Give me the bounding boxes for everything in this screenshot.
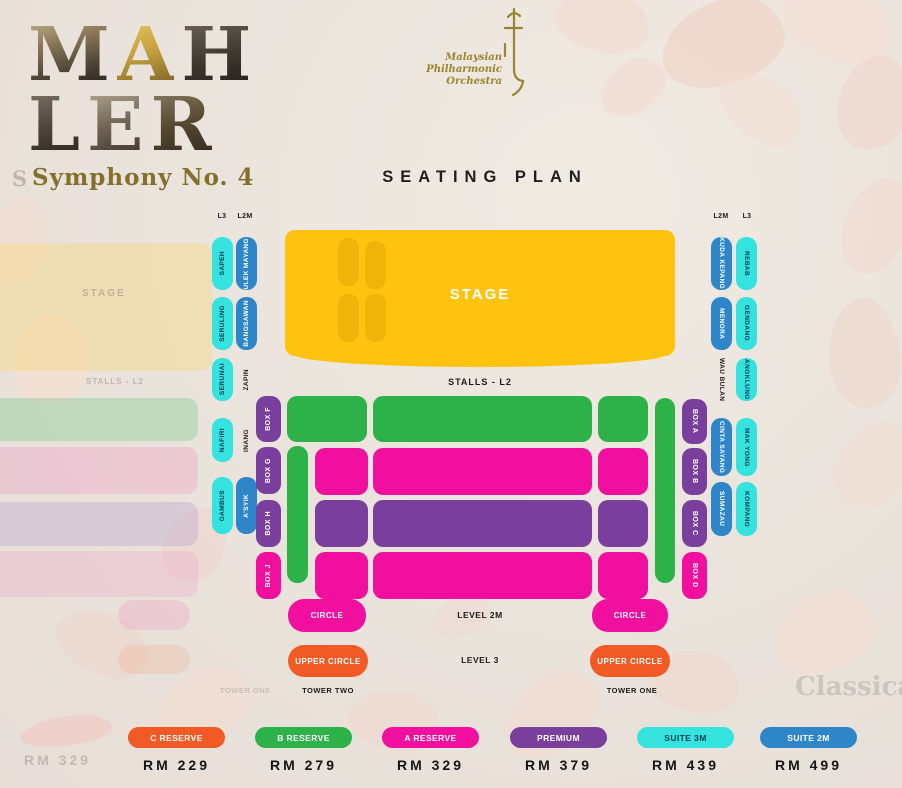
label-left-zapin: ZAPIN bbox=[236, 358, 257, 401]
ghost-row-pink2 bbox=[0, 551, 198, 597]
left-header-l3: L3 bbox=[211, 213, 233, 220]
petal bbox=[0, 305, 102, 413]
petal bbox=[834, 169, 902, 281]
label-right-wau-bulan: WAU BULAN bbox=[711, 358, 732, 401]
petal bbox=[19, 711, 114, 750]
stalls-right-block-row2[interactable] bbox=[598, 448, 648, 495]
ghost-stage-area bbox=[0, 243, 212, 371]
symphony-subtitle: Symphony No. 4 bbox=[32, 164, 255, 191]
ghost-tower-label: TOWER ONE bbox=[220, 686, 271, 695]
suite-left-nafiri[interactable]: NAFIRI bbox=[212, 418, 233, 462]
stalls-left-block-row4[interactable] bbox=[315, 552, 368, 599]
stalls-left-block-row2[interactable] bbox=[315, 448, 368, 495]
petal bbox=[764, 580, 885, 683]
petal bbox=[548, 0, 658, 65]
circle-right-pill[interactable]: CIRCLE bbox=[592, 599, 668, 632]
stalls-right-block-row1[interactable] bbox=[598, 396, 648, 442]
price-c-reserve: RM 229 bbox=[111, 757, 242, 773]
stalls-label: STALLS - L2 bbox=[285, 377, 675, 387]
petal bbox=[707, 54, 815, 161]
stalls-left-aisle-bar[interactable] bbox=[287, 446, 308, 583]
mahler-letters-row1: M A H bbox=[28, 18, 251, 92]
legend-a-reserve: A RESERVE bbox=[382, 727, 479, 748]
tower-two-label: TOWER TWO bbox=[288, 686, 368, 695]
suite-right-menora[interactable]: MENORA bbox=[711, 297, 732, 350]
stalls-left-block-row3[interactable] bbox=[315, 500, 368, 547]
ghost-row-purple bbox=[0, 502, 198, 546]
box-h[interactable]: BOX H bbox=[256, 500, 281, 547]
suite-right-angklung[interactable]: ANGKLUNG bbox=[736, 358, 757, 401]
suite-left-bangsawan[interactable]: BANGSAWAN bbox=[236, 297, 257, 350]
suite-right-mak-yong[interactable]: MAK YONG bbox=[736, 418, 757, 476]
right-header-l3: L3 bbox=[736, 213, 758, 220]
suite-left-gambus[interactable]: GAMBUS bbox=[212, 477, 233, 534]
petal bbox=[590, 48, 676, 126]
logo-line-3: Orchestra bbox=[426, 76, 502, 88]
price-a-reserve: RM 329 bbox=[365, 757, 496, 773]
letter-m: M bbox=[28, 18, 110, 92]
ghost-upper-pill bbox=[118, 645, 190, 674]
letter-e: E bbox=[87, 88, 143, 162]
legend-c-reserve: C RESERVE bbox=[128, 727, 225, 748]
legend-b-reserve: B RESERVE bbox=[255, 727, 352, 748]
ghost-price: RM 329 bbox=[24, 752, 91, 768]
box-d[interactable]: BOX D bbox=[682, 552, 707, 599]
mpo-logo-text: Malaysian Philharmonic Orchestra bbox=[426, 52, 502, 88]
upper-circle-right-pill[interactable]: UPPER CIRCLE bbox=[590, 645, 670, 677]
suite-left-seruling[interactable]: SERULING bbox=[212, 297, 233, 350]
petal bbox=[46, 592, 159, 693]
legend-premium: PREMIUM bbox=[510, 727, 607, 748]
right-header-l2m: L2M bbox=[710, 213, 732, 220]
ghost-circle-pill bbox=[118, 600, 190, 630]
legend-suite-3m: SUITE 3M bbox=[637, 727, 734, 748]
suite-right-rebab[interactable]: REBAB bbox=[736, 237, 757, 290]
suite-right-cinta-sayang[interactable]: CINTA SAYANG bbox=[711, 418, 732, 476]
legend-suite-2m: SUITE 2M bbox=[760, 727, 857, 748]
suite-left-ulek-mayang[interactable]: ULEK MAYANG bbox=[236, 237, 257, 290]
ghost-stalls-label: STALLS - L2 bbox=[86, 377, 144, 386]
suite-left-asyik[interactable]: A'SYIK bbox=[236, 477, 257, 534]
petal bbox=[819, 293, 902, 414]
ghost-stage-label: STAGE bbox=[82, 288, 126, 299]
stalls-center-block-row1[interactable] bbox=[373, 396, 592, 442]
petal bbox=[652, 0, 794, 99]
price-premium: RM 379 bbox=[493, 757, 624, 773]
label-left-inang: INANG bbox=[236, 418, 257, 462]
seating-plan-poster: STAGE STALLS - L2 TOWER ONE S RM 329 Cla… bbox=[0, 0, 902, 788]
letter-a: A bbox=[117, 18, 174, 92]
stage-label: STAGE bbox=[285, 286, 675, 303]
box-j[interactable]: BOX J bbox=[256, 552, 281, 599]
letter-r: R bbox=[150, 88, 212, 162]
stalls-right-aisle-bar[interactable] bbox=[655, 398, 675, 583]
stage: STAGE bbox=[285, 230, 675, 356]
petal bbox=[769, 0, 902, 83]
box-c[interactable]: BOX C bbox=[682, 500, 707, 547]
petal bbox=[835, 53, 902, 153]
petal bbox=[822, 408, 902, 521]
suite-right-kuda-kepang[interactable]: KUDA KEPANG bbox=[711, 237, 732, 290]
stalls-right-block-row3[interactable] bbox=[598, 500, 648, 547]
page-title: SEATING PLAN bbox=[290, 168, 680, 187]
mpo-logo-icon bbox=[498, 6, 532, 98]
price-b-reserve: RM 279 bbox=[238, 757, 369, 773]
stage-choir-pill bbox=[365, 241, 386, 289]
stage-choir-pill bbox=[338, 238, 359, 286]
box-f[interactable]: BOX F bbox=[256, 396, 281, 442]
letter-h: H bbox=[181, 18, 251, 92]
letter-l: L bbox=[28, 88, 80, 162]
suite-right-sumazau[interactable]: SUMAZAU bbox=[711, 482, 732, 536]
logo-line-2: Philharmonic bbox=[426, 64, 502, 76]
ghost-row-pink1 bbox=[0, 447, 198, 494]
petal bbox=[0, 190, 56, 291]
suite-right-gendang[interactable]: GENDANG bbox=[736, 297, 757, 350]
price-suite-2m: RM 499 bbox=[743, 757, 874, 773]
ghost-classics: Classical bbox=[795, 672, 902, 702]
box-a[interactable]: BOX A bbox=[682, 399, 707, 444]
ghost-row-green bbox=[0, 398, 198, 441]
stalls-right-block-row4[interactable] bbox=[598, 552, 648, 599]
mahler-letters-row2: L E R bbox=[28, 88, 212, 162]
box-g[interactable]: BOX G bbox=[256, 447, 281, 494]
suite-right-kompang[interactable]: KOMPANG bbox=[736, 482, 757, 536]
suite-left-sapeh[interactable]: SAPEH bbox=[212, 237, 233, 290]
stalls-center-block-row4[interactable] bbox=[373, 552, 592, 599]
ghost-letter-s: S bbox=[12, 166, 27, 191]
price-suite-3m: RM 439 bbox=[620, 757, 751, 773]
box-b[interactable]: BOX B bbox=[682, 448, 707, 495]
stalls-left-block-row1[interactable] bbox=[287, 396, 367, 442]
tower-one-label: TOWER ONE bbox=[592, 686, 672, 695]
suite-left-serunai[interactable]: SERUNAI bbox=[212, 358, 233, 401]
left-header-l2m: L2M bbox=[234, 213, 256, 220]
stalls-center-block-row2[interactable] bbox=[373, 448, 592, 495]
logo-line-1: Malaysian bbox=[426, 52, 502, 64]
stalls-center-block-row3[interactable] bbox=[373, 500, 592, 547]
